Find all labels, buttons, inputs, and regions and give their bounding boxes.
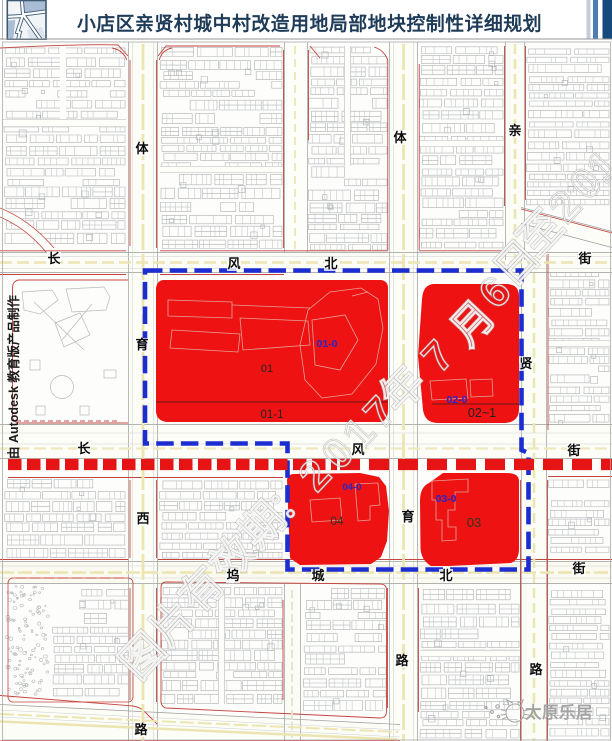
svg-text:小店区亲贤村城中村改造用地局部地块控制性详细规划: 小店区亲贤村城中村改造用地局部地块控制性详细规划 — [77, 12, 542, 34]
svg-text:亲: 亲 — [508, 123, 521, 138]
svg-text:太原乐居: 太原乐居 — [525, 702, 593, 722]
svg-text:04-0: 04-0 — [342, 482, 361, 493]
svg-text:西: 西 — [136, 511, 149, 526]
svg-text:02-0: 02-0 — [446, 394, 467, 406]
svg-text:02~1: 02~1 — [468, 406, 496, 420]
svg-text:由 Autodesk 教育版产品制作: 由 Autodesk 教育版产品制作 — [6, 295, 21, 459]
svg-text:贤: 贤 — [519, 356, 532, 371]
svg-text:长: 长 — [47, 251, 61, 266]
svg-text:长: 长 — [77, 441, 91, 456]
svg-text:北: 北 — [439, 568, 452, 583]
svg-text:01-0: 01-0 — [316, 338, 337, 350]
svg-text:01-1: 01-1 — [260, 409, 283, 421]
svg-text:北: 北 — [324, 256, 337, 271]
svg-text:路: 路 — [395, 653, 409, 668]
svg-text:育: 育 — [401, 509, 414, 524]
svg-text:体: 体 — [393, 130, 407, 145]
svg-text:街: 街 — [577, 251, 591, 266]
svg-text:风: 风 — [227, 256, 240, 271]
svg-text:育: 育 — [135, 337, 148, 352]
svg-text:路: 路 — [134, 722, 148, 737]
svg-text:路: 路 — [529, 662, 543, 677]
svg-text:体: 体 — [135, 141, 149, 156]
svg-text:03: 03 — [467, 515, 481, 530]
svg-text:城: 城 — [311, 568, 324, 583]
svg-text:04: 04 — [330, 514, 344, 528]
svg-text:街: 街 — [566, 443, 580, 458]
svg-text:坞: 坞 — [226, 568, 239, 583]
svg-text:01: 01 — [261, 363, 273, 375]
svg-text:03-0: 03-0 — [435, 493, 456, 505]
svg-text:风: 风 — [351, 442, 364, 457]
svg-text:街: 街 — [571, 561, 585, 576]
